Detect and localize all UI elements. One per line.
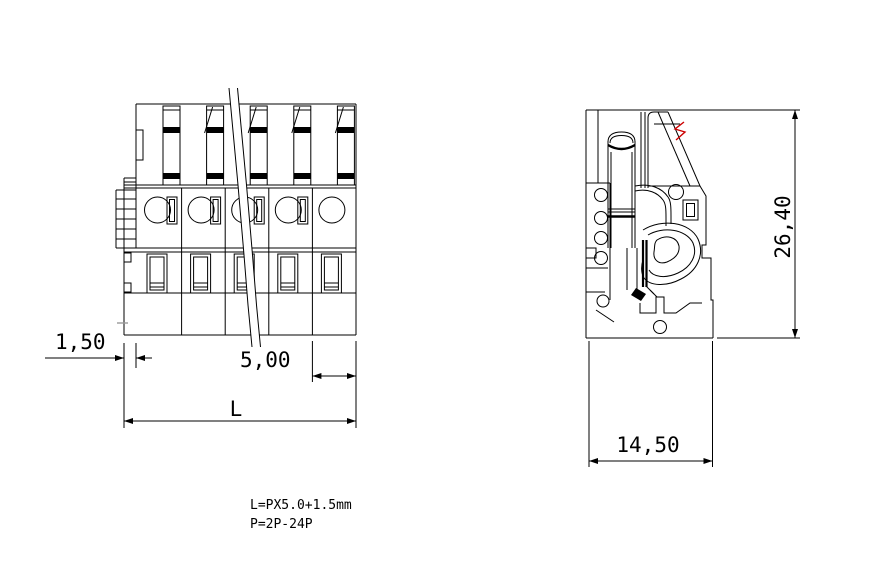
dimension-length: L — [124, 397, 356, 424]
housing-hole — [597, 295, 609, 307]
dim-offset-label: 1,50 — [55, 330, 106, 354]
contact-window — [321, 254, 341, 293]
end-plate-tab — [136, 130, 143, 160]
contact-tip — [631, 288, 646, 301]
terminal-slot — [163, 106, 180, 185]
wire-entry — [319, 197, 345, 223]
note-pole-range: P=2P-24P — [250, 517, 313, 532]
housing-hole — [595, 212, 608, 225]
wire-entry — [145, 197, 178, 224]
housing-hole — [595, 232, 608, 245]
wire-entry — [188, 197, 221, 224]
wire-entry — [275, 197, 308, 224]
drawing-canvas: 1,50 5,00 L — [0, 0, 892, 581]
dim-depth-label: 14,50 — [616, 433, 679, 457]
housing-hole — [654, 321, 667, 334]
dim-height-label: 26,40 — [771, 195, 795, 258]
dim-pitch-label: 5,00 — [240, 348, 291, 372]
drawing-notes: L=PX5.0+1.5mm P=2P-24P — [250, 498, 352, 532]
pilot-hole — [669, 185, 684, 200]
front-view — [116, 88, 356, 347]
side-view — [586, 110, 713, 338]
side-latch-ladder — [116, 190, 136, 248]
dimension-depth: 14,50 — [589, 341, 713, 467]
note-length-formula: L=PX5.0+1.5mm — [250, 498, 352, 513]
dimension-offset: 1,50 — [45, 330, 152, 428]
contact-window — [147, 254, 167, 293]
spring-cavity — [642, 223, 701, 284]
dimension-height: 26,40 — [586, 110, 800, 338]
technical-drawing: 1,50 5,00 L — [0, 0, 892, 581]
contact-window — [278, 254, 298, 293]
dim-length-label: L — [230, 397, 243, 421]
contact-window — [191, 254, 211, 293]
housing-hole — [595, 189, 608, 202]
dimension-pitch: 5,00 — [240, 341, 356, 428]
